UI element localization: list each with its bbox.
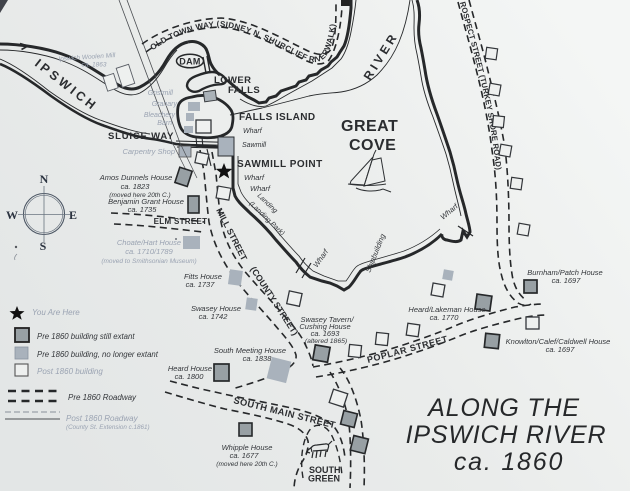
- svg-text:ELM STREET: ELM STREET: [154, 217, 208, 226]
- svg-text:COVE: COVE: [349, 137, 396, 154]
- svg-text:(altered 1865): (altered 1865): [305, 338, 347, 345]
- svg-text:Sawmill: Sawmill: [242, 142, 267, 149]
- svg-text:Post 1860 Roadway: Post 1860 Roadway: [66, 414, 139, 423]
- svg-text:ca. 1742: ca. 1742: [199, 312, 229, 321]
- svg-text:FALLS ISLAND: FALLS ISLAND: [239, 112, 315, 123]
- svg-text:SAWMILL POINT: SAWMILL POINT: [237, 159, 323, 170]
- svg-text:(moved to Smithsonian Museum): (moved to Smithsonian Museum): [101, 258, 196, 265]
- svg-text:ALONG THE: ALONG THE: [426, 394, 580, 422]
- svg-text:SLUICE WAY: SLUICE WAY: [108, 131, 174, 142]
- svg-text:ca. 1823: ca. 1823: [121, 182, 151, 191]
- svg-text:S: S: [40, 239, 47, 253]
- svg-text:W: W: [6, 208, 18, 222]
- svg-text:ca. 1838: ca. 1838: [243, 354, 273, 363]
- svg-text:ca. 1735: ca. 1735: [128, 205, 158, 214]
- svg-text:Gristmill: Gristmill: [148, 90, 174, 97]
- svg-text:Carpentry Shop: Carpentry Shop: [122, 147, 175, 156]
- svg-text:ca. 1770: ca. 1770: [430, 313, 460, 322]
- svg-text:Granary: Granary: [152, 101, 178, 108]
- svg-text:GREEN: GREEN: [308, 474, 340, 484]
- svg-text:(moved here 20th C.): (moved here 20th C.): [216, 461, 277, 468]
- svg-text:ca. 1710/1789: ca. 1710/1789: [125, 247, 173, 256]
- svg-text:ca. 1860: ca. 1860: [454, 448, 564, 476]
- svg-text:ca. 1697: ca. 1697: [552, 276, 582, 285]
- svg-text:You Are Here: You Are Here: [32, 308, 80, 317]
- svg-text:ca. 1800: ca. 1800: [175, 372, 205, 381]
- svg-text:Amos Dunnels House: Amos Dunnels House: [99, 173, 173, 182]
- svg-text:ca. 1677: ca. 1677: [230, 451, 260, 460]
- svg-text:N: N: [40, 172, 49, 186]
- svg-text:GREAT: GREAT: [341, 118, 398, 135]
- svg-text:ca. 1697: ca. 1697: [546, 345, 576, 354]
- svg-text:Bleachery: Bleachery: [144, 112, 176, 119]
- svg-text:FALLS: FALLS: [228, 85, 260, 96]
- svg-text:Wharf: Wharf: [244, 173, 265, 182]
- svg-text:Barn: Barn: [157, 120, 172, 127]
- svg-text:Pre 1860 building still extant: Pre 1860 building still extant: [37, 332, 135, 341]
- svg-text:Post 1860 building: Post 1860 building: [37, 367, 103, 376]
- svg-text:Choate/Hart House: Choate/Hart House: [117, 238, 181, 247]
- svg-text:DAM: DAM: [179, 57, 200, 67]
- svg-text:E: E: [69, 208, 77, 222]
- svg-text:ca. 1863: ca. 1863: [82, 62, 107, 69]
- svg-text:Wharf: Wharf: [243, 128, 263, 135]
- svg-text:ca. 1693: ca. 1693: [311, 329, 341, 338]
- svg-text:Pre 1860 Roadway: Pre 1860 Roadway: [68, 393, 137, 402]
- svg-text:(County St. Extension c.1861): (County St. Extension c.1861): [66, 424, 150, 431]
- svg-text:Pre 1860 building, no longer e: Pre 1860 building, no longer extant: [37, 350, 159, 359]
- svg-text:ca. 1737: ca. 1737: [186, 280, 216, 289]
- svg-text:IPSWICH RIVER: IPSWICH RIVER: [406, 421, 607, 449]
